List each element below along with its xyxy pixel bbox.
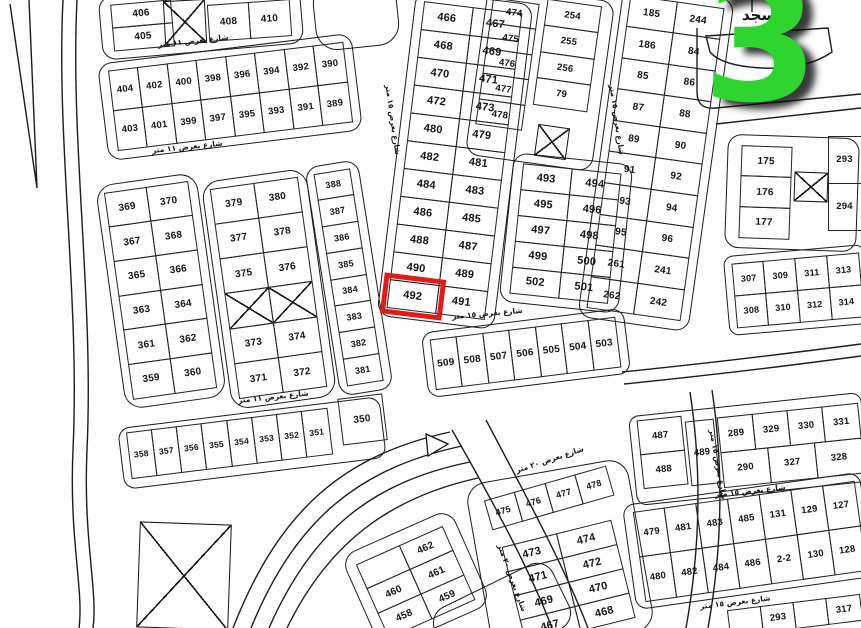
block-289-331: 289329330331290327328 [717,403,861,487]
plot-312: 312 [797,287,833,323]
highlighted-plot-492: 492 [386,279,439,314]
plot-311: 311 [794,255,830,291]
crossed-plot-center [534,124,570,160]
plot-314: 314 [829,284,861,320]
plot-381: 381 [342,353,383,386]
plot-317: 317 [825,593,861,624]
plot-289: 289 [716,413,756,453]
plot-328: 328 [813,437,861,478]
plot-410: 410 [247,0,291,38]
plot-390: 390 [312,41,347,85]
plot-127: 127 [822,480,861,530]
plot-290: 290 [720,447,772,488]
plot-329: 329 [751,410,791,450]
plot-175: 175 [740,145,792,178]
plot-309: 309 [763,258,799,294]
block-175-177: 175176177 [738,145,791,239]
plot-359: 359 [127,358,175,399]
block-293-294: 293294 [828,136,861,230]
district-number: 3 [702,0,819,126]
plot-177: 177 [738,206,790,239]
plot-293: 293 [828,136,861,184]
plot-313: 313 [826,252,861,288]
plot-502: 502 [509,266,562,298]
plot-351: 351 [301,407,333,457]
plot-128: 128 [828,525,861,575]
plot-389: 389 [317,81,352,125]
plot-blank [792,597,829,628]
plot-blank [726,606,763,628]
block-487-488: 487488 [637,416,688,488]
plot-330: 330 [786,406,826,446]
plot-372: 372 [277,351,327,393]
plot-331: 331 [821,402,861,442]
plot-176: 176 [739,175,791,208]
block-350: 350 [337,393,386,444]
block-307-314: 307309311313308310312314 [731,253,861,328]
plot-310: 310 [765,289,801,325]
plot-488: 488 [640,449,688,489]
crossed-square-large [136,521,232,628]
plot-308: 308 [734,292,770,328]
plot-327: 327 [767,442,819,483]
plot-360: 360 [169,352,217,393]
plot-262: 262 [586,276,638,315]
plot-350: 350 [337,393,387,445]
canal-line [10,0,37,188]
plot-307: 307 [731,260,767,296]
cadastral-map: 406405 408410 40440240039839639439239040… [0,0,861,628]
crossed-plot-right [793,171,828,202]
plot-294: 294 [828,183,861,231]
plot-242: 242 [632,283,684,322]
plot-293: 293 [759,602,796,628]
